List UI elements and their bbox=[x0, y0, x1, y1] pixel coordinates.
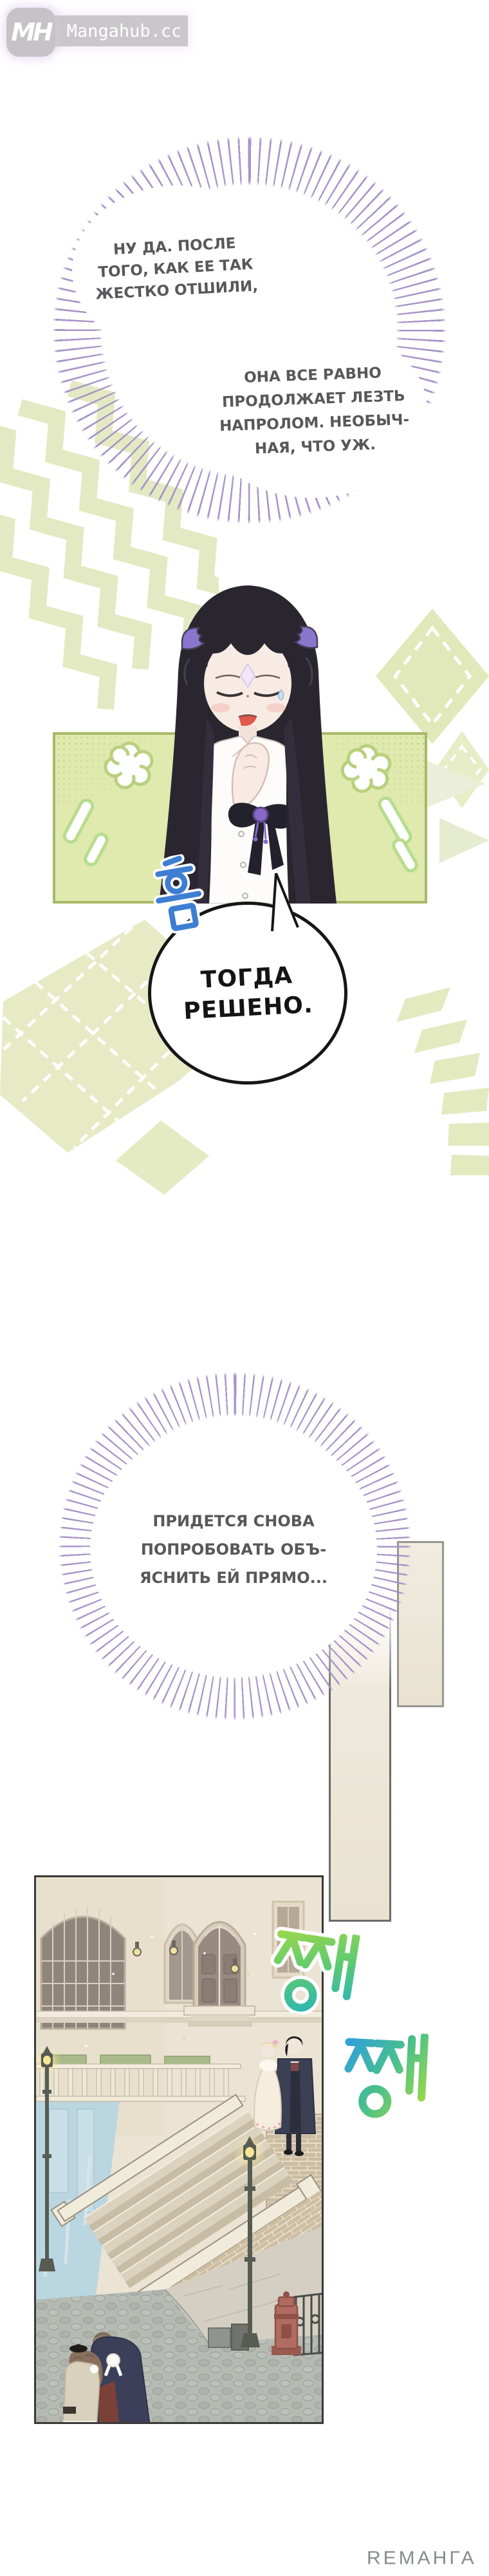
sfx-clink-2: 쨍 bbox=[338, 2029, 433, 2124]
arrow-pattern-decoration bbox=[421, 757, 489, 866]
emphasis-dash-decoration bbox=[81, 830, 111, 869]
remanga-watermark-text: RЕМАНГА bbox=[367, 2548, 477, 2568]
mh-logo-icon: MH bbox=[6, 8, 55, 57]
speech-bubble-tail bbox=[261, 871, 306, 935]
sfx-clink-1: 쨍 bbox=[263, 1922, 365, 2022]
remanga-watermark: RЕМАНГА bbox=[367, 2548, 486, 2569]
bubble4-line: ЯСНИТЬ ЕЙ ПРЯМО... bbox=[140, 1564, 328, 1592]
emphasis-dash-decoration bbox=[389, 835, 421, 875]
mh-logo-text: MH bbox=[11, 18, 51, 46]
step-pattern-decoration bbox=[391, 976, 489, 1175]
speech-bubble-thought: ПРИДЕТСЯ СНОВА ПОПРОБОВАТЬ ОБЪ- ЯСНИТЬ Е… bbox=[90, 1422, 377, 1677]
sfx-clink2-glyph bbox=[338, 2029, 433, 2124]
site-domain-text: Mangahub.cc bbox=[67, 21, 182, 41]
bubble3-line: РЕШЕНО. bbox=[183, 990, 314, 1027]
bubble4-line: ПРИДЕТСЯ СНОВА bbox=[152, 1507, 314, 1535]
manga-page: Mangahub.cc MH bbox=[0, 0, 489, 2576]
bubble4-line: ПОПРОБОВАТЬ ОБЪ- bbox=[141, 1535, 326, 1564]
site-watermark-banner: Mangahub.cc bbox=[41, 15, 188, 46]
bubble2-line: НАЯ, ЧТО УЖ. bbox=[254, 433, 376, 462]
sfx-clink1-glyph bbox=[263, 1922, 365, 2022]
